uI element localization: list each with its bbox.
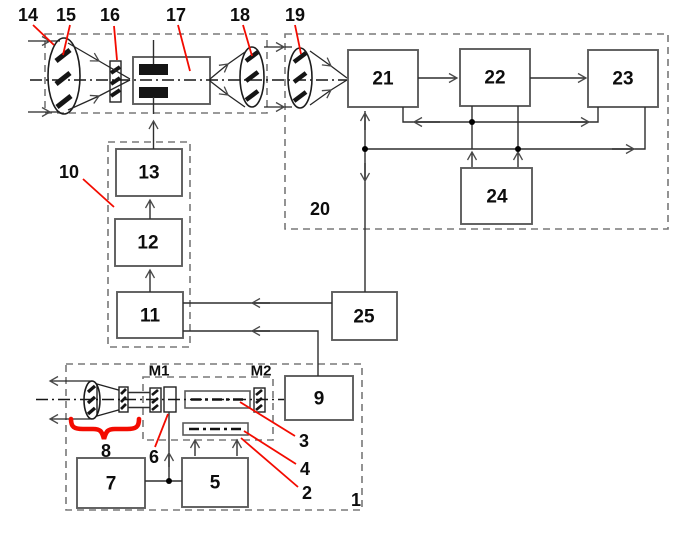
mirror-m2-label: M2 — [251, 363, 272, 380]
block-24-label: 24 — [486, 187, 508, 208]
callout-14-label: 14 — [18, 5, 38, 25]
ray-19-to-21-lower — [310, 80, 347, 105]
callout-15-label: 15 — [56, 5, 76, 25]
callout-2-line — [241, 438, 298, 487]
callout-10-label: 10 — [59, 162, 79, 182]
callout-2-label: 2 — [302, 483, 312, 503]
block-7-label: 7 — [106, 474, 117, 495]
block-9-label: 9 — [314, 389, 325, 410]
callout-16-line — [114, 26, 117, 60]
callout-14-line — [33, 25, 54, 45]
callout-18-label: 18 — [230, 5, 250, 25]
callout-3-label: 3 — [299, 431, 309, 451]
optical-system-diagram: 14 15 16 17 18 19 10 20 8 6 3 4 2 1 21 2… — [0, 0, 700, 550]
callout-8-label: 8 — [101, 441, 111, 461]
callout-4-label: 4 — [300, 459, 310, 479]
blocks — [77, 49, 658, 508]
callout-18-line — [243, 25, 252, 56]
block-21-label: 21 — [372, 69, 394, 90]
modulator-electrode-bottom — [139, 87, 168, 98]
callout-19-label: 19 — [285, 5, 305, 25]
callout-17-label: 17 — [166, 5, 186, 25]
junction-dot — [166, 478, 172, 484]
callout-1-label: 1 — [351, 490, 361, 510]
callout-10-line — [83, 179, 114, 207]
bus-b — [365, 107, 645, 149]
wires — [145, 78, 645, 481]
block-25-label: 25 — [353, 307, 375, 328]
block-23-label: 23 — [612, 69, 633, 90]
callout-6-line — [155, 414, 168, 447]
callout-20-label: 20 — [310, 199, 330, 219]
lens-15-hatch — [56, 50, 71, 107]
ray-19-to-21-upper — [310, 51, 347, 78]
block-5-label: 5 — [210, 473, 221, 494]
junction-dot — [515, 146, 521, 152]
block-13-label: 13 — [138, 163, 159, 184]
mirror-m1-label: M1 — [149, 363, 170, 380]
callout-16-label: 16 — [100, 5, 120, 25]
junction-dot — [469, 119, 475, 125]
junction-dot — [362, 146, 368, 152]
brace-8 — [71, 419, 139, 439]
output-lens-hatch — [88, 386, 95, 414]
bus-a — [403, 107, 598, 122]
modulator-electrode-top — [139, 64, 168, 75]
block-22-label: 22 — [484, 68, 505, 89]
block-12-label: 12 — [137, 233, 158, 254]
block-11-label: 11 — [140, 306, 161, 327]
lens-18-hatch — [246, 52, 258, 100]
callout-6-label: 6 — [149, 447, 159, 467]
lens-19-hatch — [294, 53, 306, 101]
